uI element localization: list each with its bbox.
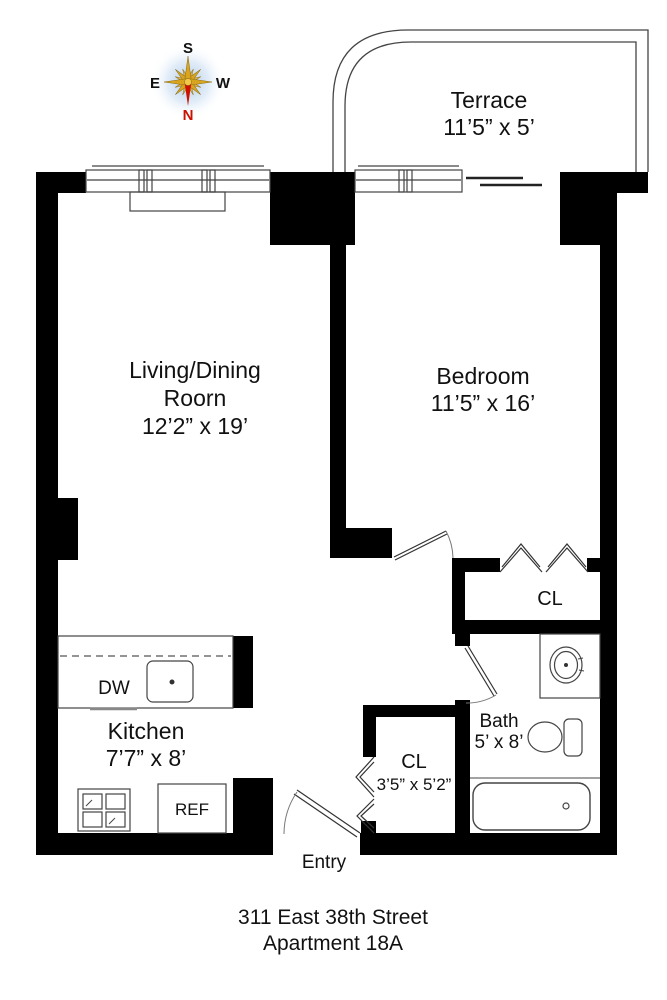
kitchen-counter (58, 636, 233, 709)
bedroom-dims: 11’5” x 16’ (431, 390, 535, 416)
address-line2: Apartment 18A (263, 932, 403, 955)
refrigerator-label: REF (175, 800, 209, 819)
entry-label: Entry (302, 852, 347, 873)
entry-closet-name: CL (401, 751, 427, 773)
compass-east-label: E (150, 75, 160, 92)
living-name-line1: Living/Dining (129, 357, 261, 383)
terrace-name: Terrace (451, 87, 528, 113)
stove (78, 789, 130, 831)
refrigerator: REF (158, 784, 226, 833)
dishwasher-label: DW (98, 678, 130, 699)
compass-south-label: S (183, 40, 193, 57)
bedroom-window (355, 166, 462, 192)
kitchen-name: Kitchen (108, 718, 185, 744)
living-name-line2: Roorn (164, 385, 227, 411)
floor-plan-page: S E W N (0, 0, 667, 1000)
kitchen-dims: 7’7” x 8’ (106, 745, 187, 771)
floor-plan: S E W N (0, 0, 667, 1000)
compass-center (185, 79, 192, 86)
compass-west-label: W (216, 75, 231, 92)
bedroom-name: Bedroom (436, 363, 529, 389)
entry-closet-dims: 3’5” x 5’2” (377, 775, 452, 794)
bath-label: Bath 5’ x 8’ (475, 711, 524, 753)
kitchen-label: Kitchen 7’7” x 8’ (106, 718, 187, 771)
bath-name: Bath (479, 711, 518, 732)
terrace-dims: 11’5” x 5’ (443, 114, 535, 140)
bedroom-label: Bedroom 11’5” x 16’ (431, 363, 535, 416)
address-line1: 311 East 38th Street (238, 906, 428, 929)
living-dims: 12’2” x 19’ (142, 413, 248, 439)
bath-dims: 5’ x 8’ (475, 732, 524, 753)
terrace-label: Terrace 11’5” x 5’ (443, 87, 535, 140)
compass-north-label: N (183, 107, 194, 124)
bedroom-closet-label: CL (537, 588, 563, 610)
